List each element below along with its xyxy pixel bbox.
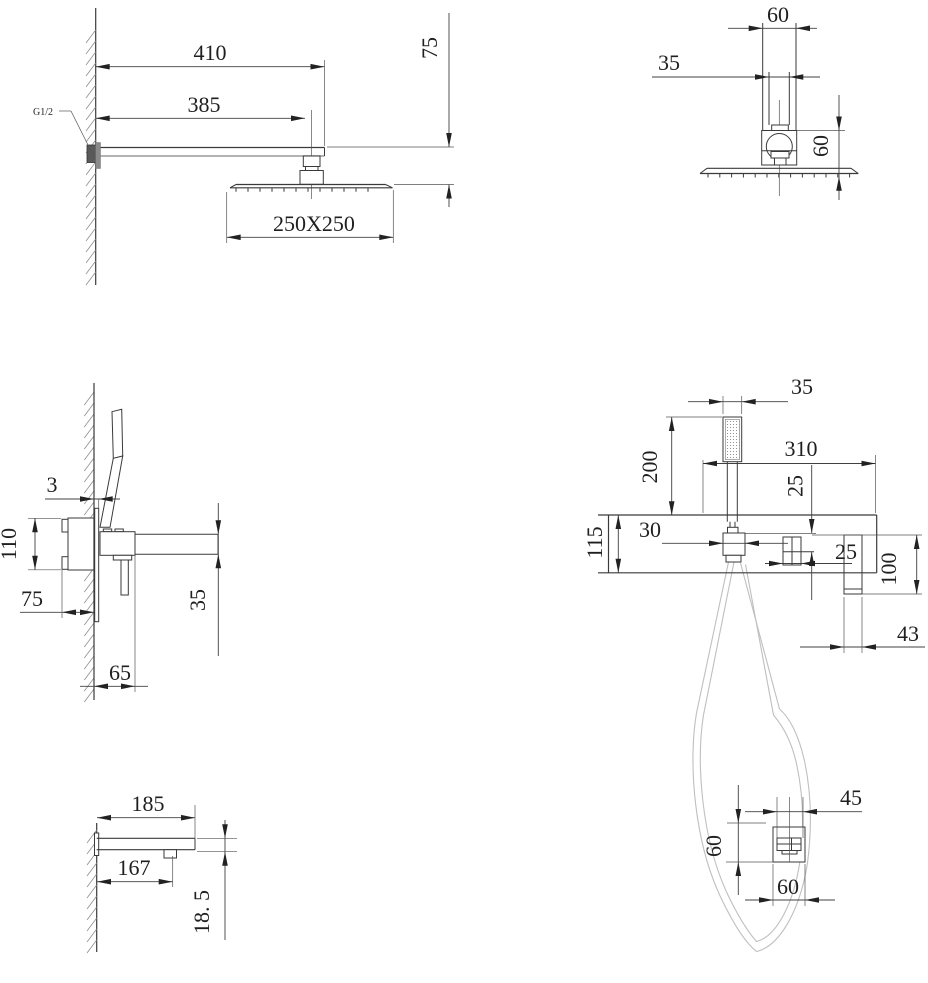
dim-75: 75	[327, 13, 454, 207]
valve-body	[68, 518, 94, 570]
dim-label-handshower-width: 35	[791, 374, 813, 399]
dimension-arrowhead	[446, 185, 452, 199]
wall-flange	[96, 143, 101, 169]
diverter-control	[783, 537, 814, 565]
dim-35-top: 35	[652, 50, 820, 77]
dimension-arrowhead	[32, 518, 38, 532]
dim-label-plate-gap: 3	[47, 472, 58, 497]
dimension-arrowhead	[862, 461, 876, 467]
valve-stub-bottom	[62, 557, 68, 570]
dimension-arrowhead	[763, 809, 777, 815]
dim-60-left: 60	[701, 785, 773, 895]
dim-385: 385	[96, 92, 305, 118]
dim-label-spout-thickness: 35	[185, 589, 210, 611]
dimension-arrowhead	[742, 399, 756, 405]
dimension-arrowhead	[159, 879, 173, 885]
dimension-arrowhead	[379, 235, 393, 241]
spout-flange	[95, 833, 99, 856]
connector-flange	[306, 167, 319, 171]
dimension-arrowhead	[862, 644, 876, 650]
drawing-overhead-shower-front: 60 35 60	[652, 2, 858, 200]
drawing-mixer-side: 3 110 75 65 35	[0, 383, 218, 702]
thread-label: G1/2	[33, 107, 53, 118]
dimension-arrowhead	[94, 684, 108, 690]
handle-grip	[112, 409, 123, 458]
dimension-arrowhead	[97, 815, 111, 821]
dim-label-spout-length: 185	[132, 791, 165, 816]
dimension-arrowhead	[32, 556, 38, 570]
dimension-arrowhead	[62, 610, 76, 616]
dimension-arrowhead	[222, 852, 228, 866]
escutcheon-plate	[95, 508, 99, 621]
head-neck	[771, 152, 789, 159]
dimension-arrowhead	[796, 26, 810, 32]
dimension-arrowhead	[669, 417, 675, 431]
holder-outlet	[726, 555, 741, 562]
technical-drawing-page: 410 385 75 250X250 G1/2	[0, 0, 928, 983]
dimension-arrowhead	[709, 399, 723, 405]
dim-label-spout-thickness: 18. 5	[189, 890, 214, 934]
valve-stub-top	[62, 519, 68, 532]
dim-label-plate-width: 310	[785, 436, 818, 461]
dim-35-spout: 35	[185, 503, 218, 656]
dimension-arrowhead	[769, 561, 783, 567]
dim-label-outlet-height: 60	[701, 835, 726, 857]
hand-shower-inlet	[728, 527, 739, 533]
dimension-arrowhead	[745, 541, 759, 547]
underbody-stem	[121, 560, 128, 595]
thread-callout: G1/2	[33, 107, 95, 158]
shower-system-drawing: 410 385 75 250X250 G1/2	[0, 0, 928, 983]
shower-holder	[723, 533, 745, 555]
underbody-flange	[113, 555, 131, 560]
dimension-arrowhead	[446, 133, 452, 147]
dim-label-connector-height: 60	[808, 135, 833, 157]
dimension-arrowhead	[914, 535, 920, 549]
dim-label-outlet-width: 60	[777, 874, 799, 899]
dim-18-5: 18. 5	[189, 820, 237, 940]
dimension-arrowhead	[836, 117, 842, 131]
head-neck-step	[775, 158, 787, 165]
mixer-handle	[812, 535, 922, 594]
dim-label-handshower-height: 200	[637, 451, 662, 484]
hand-shower-face	[725, 420, 739, 460]
dimension-arrowhead	[669, 501, 675, 515]
dimension-arrowhead	[222, 824, 228, 838]
dim-43: 43	[800, 597, 925, 653]
dimension-arrowhead	[749, 26, 763, 32]
dim-60-top: 60	[728, 2, 817, 28]
dim-label-outlet-offset: 167	[118, 855, 151, 880]
spout-outlet	[164, 850, 177, 858]
dimension-arrowhead	[181, 815, 195, 821]
dim-label-valve-height: 110	[0, 528, 21, 560]
dimension-arrowhead	[616, 515, 622, 529]
dim-60-bottom: 60	[745, 864, 835, 906]
connector-block	[300, 171, 323, 185]
dimension-arrowhead	[703, 461, 717, 467]
dim-185: 185	[97, 791, 195, 838]
dimension-arrowhead	[914, 580, 920, 594]
connector-nut-front	[772, 125, 789, 131]
mixer-body-side	[100, 532, 135, 556]
dimension-arrowhead	[291, 116, 305, 122]
dim-label-handle-width: 43	[897, 621, 919, 646]
dim-110: 110	[0, 518, 61, 570]
dim-label-holder-drop: 25	[783, 475, 808, 497]
dimension-arrowhead	[96, 64, 110, 70]
dim-label-handle-height: 100	[876, 553, 901, 586]
dim-label-arm-length: 410	[194, 40, 227, 65]
dim-label-arm-width: 60	[767, 2, 789, 27]
dimension-arrowhead	[216, 520, 222, 534]
dimension-arrowhead	[755, 74, 769, 80]
dimension-arrowhead	[809, 519, 815, 533]
dim-label-control-size: 25	[835, 539, 857, 564]
dimension-arrowhead	[736, 809, 742, 823]
dim-115: 115	[582, 515, 618, 573]
nozzle-ticks	[708, 174, 850, 178]
dim-25-holder: 25	[783, 465, 812, 600]
dim-label-arm-to-head: 385	[188, 92, 221, 117]
handle-shaft	[100, 456, 123, 527]
dim-label-recess-depth: 75	[21, 586, 43, 611]
dimension-arrowhead	[97, 879, 111, 885]
dim-45: 45	[745, 785, 862, 812]
dim-30: 30	[639, 517, 788, 543]
dimension-arrowhead	[311, 64, 325, 70]
dim-label-holder-width: 30	[639, 517, 661, 542]
dimension-arrowhead	[616, 559, 622, 573]
wall-fitting	[87, 145, 96, 163]
dimension-arrowhead	[830, 644, 844, 650]
drawing-mixer-front: 35 200 310 25 30 25 115	[582, 374, 925, 952]
dimension-arrowhead	[709, 541, 723, 547]
dim-label-neck-width: 35	[658, 50, 680, 75]
dim-label-projection: 65	[109, 660, 131, 685]
dim-label-plate-height: 115	[582, 526, 607, 558]
dim-200: 200	[637, 417, 722, 515]
nozzle-ticks	[236, 188, 368, 192]
dimension-arrowhead	[801, 561, 815, 567]
dimension-arrowhead	[805, 897, 819, 903]
dimension-arrowhead	[216, 554, 222, 568]
dim-label-head-size: 250X250	[273, 211, 355, 236]
dim-250x250: 250X250	[227, 190, 394, 243]
dim-100: 100	[876, 535, 917, 594]
drawing-overhead-shower-side: 410 385 75 250X250 G1/2	[33, 8, 454, 285]
dimension-arrowhead	[736, 862, 742, 876]
connector-nut	[303, 156, 320, 167]
dimension-arrowhead	[96, 116, 110, 122]
dim-35-handshower: 35	[688, 374, 813, 414]
dim-label-outlet-offset: 45	[840, 785, 862, 810]
dimension-arrowhead	[836, 177, 842, 191]
dim-label-head-drop: 75	[417, 37, 442, 59]
dimension-arrowhead	[759, 897, 773, 903]
dimension-arrowhead	[227, 235, 241, 241]
